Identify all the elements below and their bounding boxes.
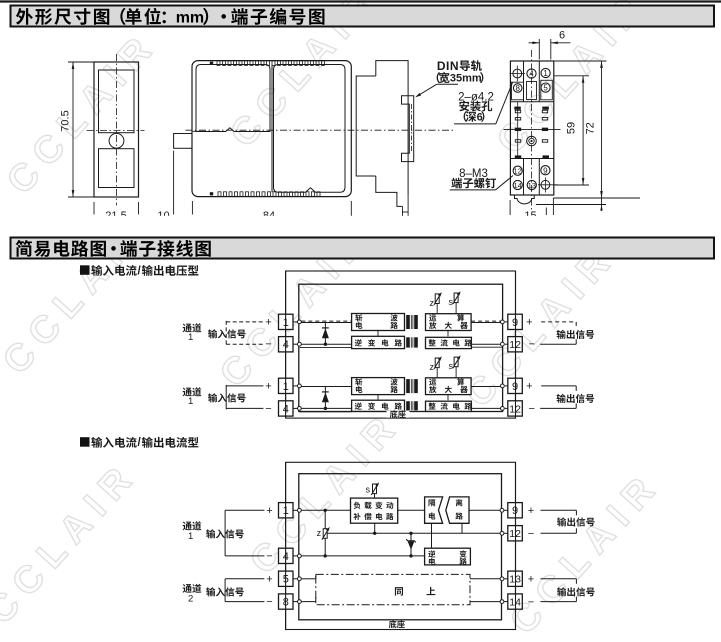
svg-text:s: s [448,361,453,371]
svg-text:+: + [265,317,271,329]
svg-text:−: − [266,596,272,608]
svg-text:59: 59 [566,122,578,134]
svg-text:+: + [266,574,272,586]
svg-text:z: z [430,362,435,372]
svg-text:−: − [265,339,271,351]
svg-text:72: 72 [584,122,596,134]
svg-text:14: 14 [514,181,522,190]
svg-text:2: 2 [188,593,193,604]
svg-text:+: + [266,505,272,517]
svg-text:+: + [528,574,534,586]
svg-text:5: 5 [543,84,548,93]
svg-text:9: 9 [543,166,548,175]
svg-text:−: − [266,550,272,562]
svg-text:mm: mm [176,10,204,27]
svg-text:−: − [528,596,534,608]
svg-text:s: s [365,484,370,494]
svg-text:35mm: 35mm [450,73,482,85]
svg-text:+: + [526,317,532,329]
svg-text:−: − [528,339,534,351]
svg-text:−: − [528,403,534,415]
svg-text:+: + [526,381,532,393]
svg-text:1: 1 [188,332,193,343]
svg-text:6: 6 [559,30,565,42]
svg-text:DIN: DIN [437,59,459,73]
svg-text:−: − [528,528,534,540]
svg-text:+: + [265,381,271,393]
svg-text:1: 1 [543,69,548,78]
svg-text:13: 13 [528,181,536,190]
svg-text:12: 12 [514,167,522,176]
svg-text:1: 1 [188,396,193,407]
svg-text:s: s [448,297,453,307]
svg-text:+: + [528,505,534,517]
svg-text:z: z [317,528,322,538]
svg-text:1: 1 [188,531,193,542]
svg-text:70.5: 70.5 [60,110,72,131]
svg-text:8–M3: 8–M3 [459,168,488,180]
svg-text:8: 8 [515,84,520,93]
svg-text:z: z [430,298,435,308]
svg-text:−: − [265,403,271,415]
